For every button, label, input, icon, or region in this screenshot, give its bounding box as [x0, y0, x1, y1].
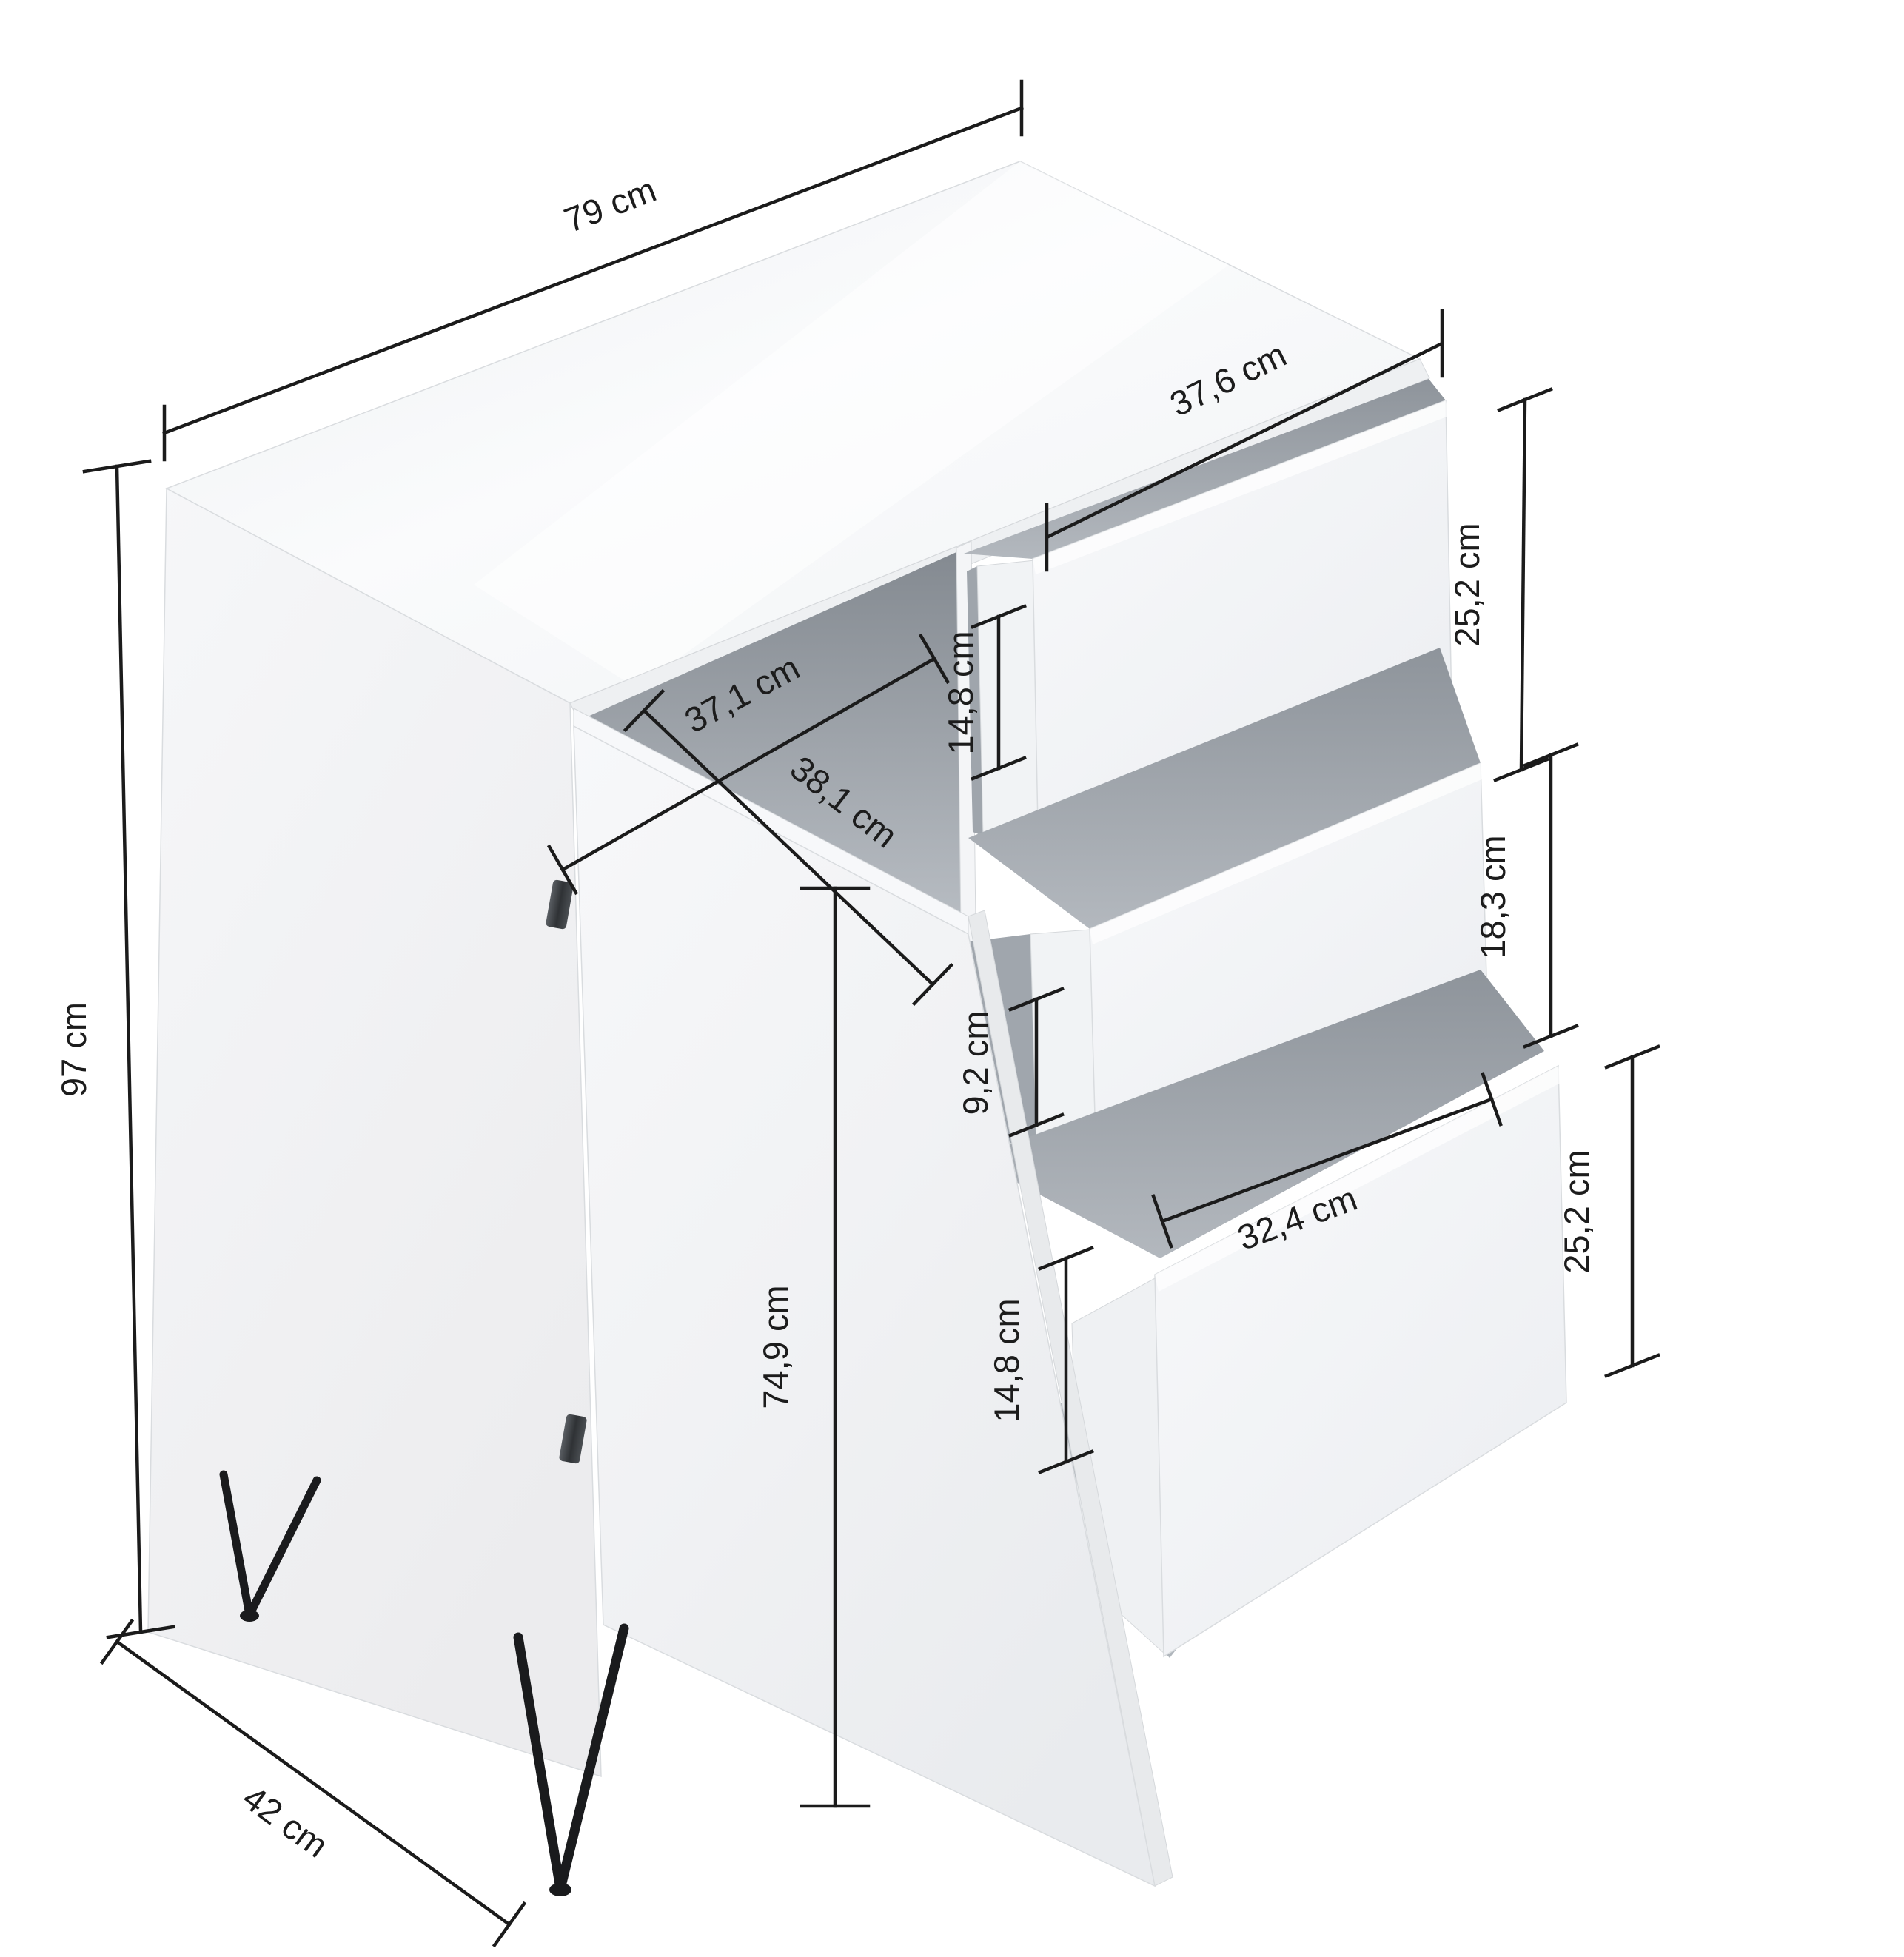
dim-label-door-height: 74,9 cm	[756, 1285, 795, 1409]
dim-label-middle-drawer-front-height: 18,3 cm	[1473, 835, 1512, 959]
back-left-leg-foot	[240, 1610, 259, 1622]
dim-label-bottom-drawer-box-height: 14,8 cm	[987, 1298, 1026, 1422]
dim-label-overall-width: 79 cm	[559, 169, 661, 240]
dim-label-middle-drawer-box-height: 9,2 cm	[956, 1010, 995, 1115]
diagram-canvas: 79 cm 97 cm 42 cm 37,6 cm 25,2 cm 37,1 c…	[0, 0, 1904, 1957]
product-dimension-diagram: 79 cm 97 cm 42 cm 37,6 cm 25,2 cm 37,1 c…	[0, 0, 1904, 1957]
cabinet	[148, 161, 1566, 1896]
dim-label-bottom-drawer-front-height: 25,2 cm	[1557, 1149, 1596, 1273]
dim-label-top-drawer-front-height: 25,2 cm	[1447, 523, 1486, 646]
dimension-bottom-drawer-front-height: 25,2 cm	[1557, 1047, 1658, 1376]
dim-label-overall-depth: 42 cm	[235, 1778, 335, 1865]
dim-label-top-drawer-box-height: 14,8 cm	[941, 631, 980, 754]
front-left-leg-foot	[549, 1883, 571, 1896]
dim-label-overall-height: 97 cm	[54, 1002, 93, 1097]
